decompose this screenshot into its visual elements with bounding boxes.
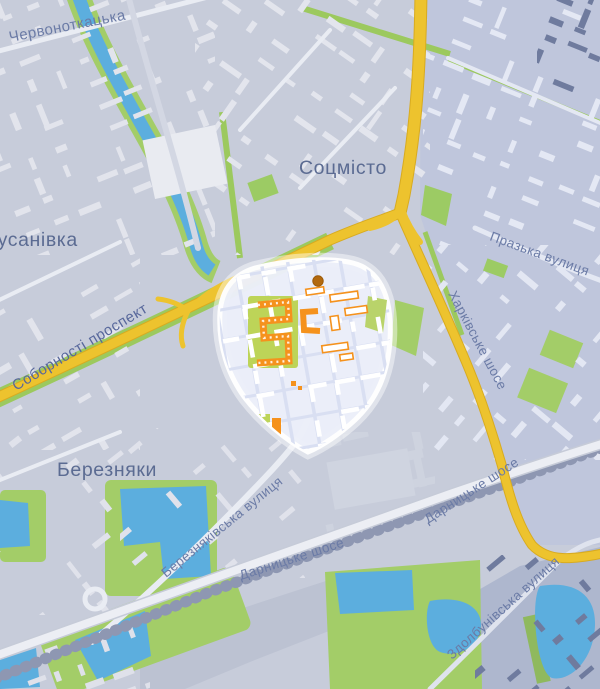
district-label-sotsmisto: Соцмісто bbox=[299, 157, 387, 179]
pond-park-a bbox=[335, 570, 414, 614]
district-label-rusanivka: Русанівка bbox=[0, 229, 78, 251]
poi-marker[interactable] bbox=[313, 276, 323, 286]
map-svg[interactable]: Червоноткацька Соцмісто Русанівка Березн… bbox=[0, 0, 600, 689]
district-label-berezniaky: Березняки bbox=[57, 459, 157, 481]
map-canvas[interactable]: Червоноткацька Соцмісто Русанівка Березн… bbox=[0, 0, 600, 689]
